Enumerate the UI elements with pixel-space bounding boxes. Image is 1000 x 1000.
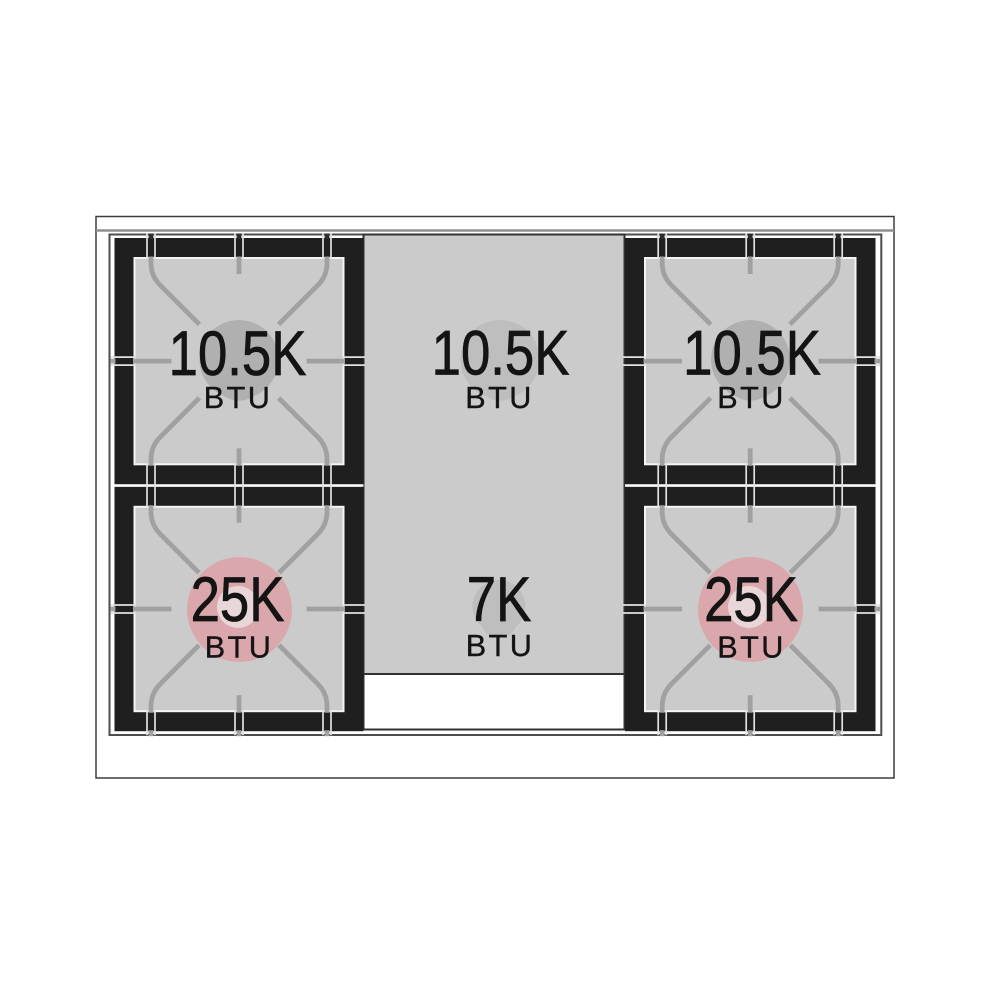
svg-text:BTU: BTU [205, 631, 273, 665]
svg-text:10.5K: 10.5K [432, 318, 570, 389]
svg-text:BTU: BTU [466, 629, 534, 663]
svg-text:BTU: BTU [717, 631, 785, 665]
svg-text:10.5K: 10.5K [683, 318, 821, 389]
svg-text:25K: 25K [191, 564, 285, 635]
svg-text:10.5K: 10.5K [169, 318, 307, 389]
svg-text:BTU: BTU [204, 381, 272, 415]
svg-text:BTU: BTU [465, 381, 533, 415]
svg-text:BTU: BTU [717, 381, 785, 415]
svg-text:7K: 7K [467, 564, 532, 635]
svg-text:25K: 25K [704, 564, 798, 635]
